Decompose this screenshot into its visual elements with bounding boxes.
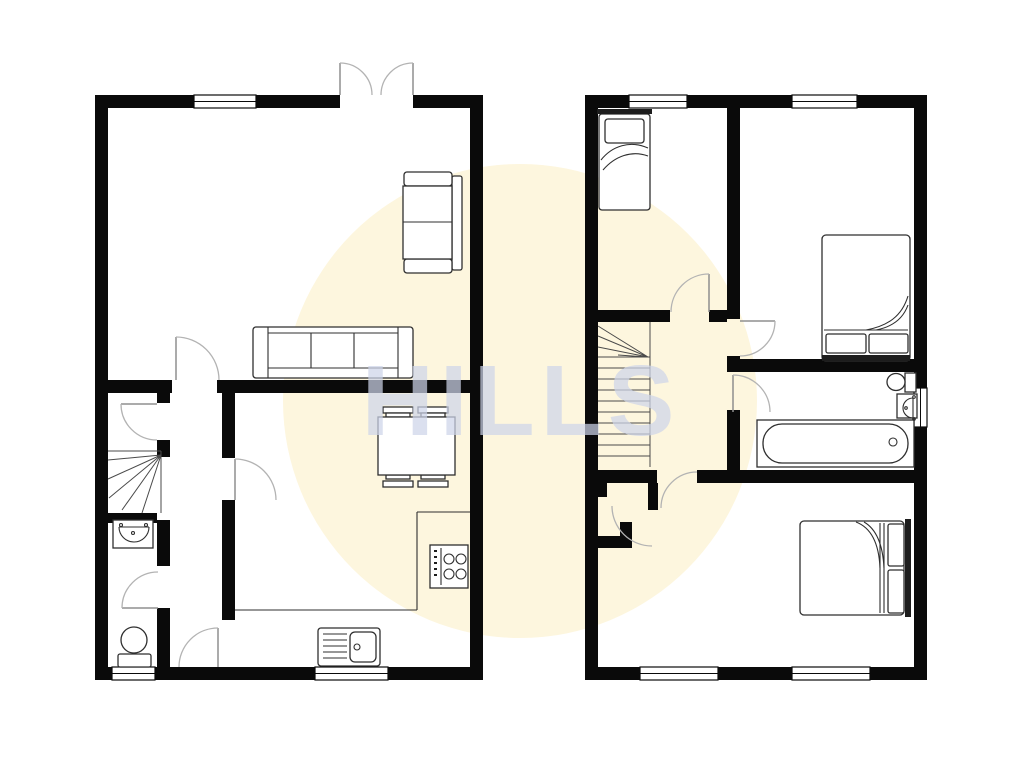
toilet-icon <box>887 373 916 392</box>
wc-window-icon <box>112 667 155 680</box>
floorplan-page: HILLS <box>0 0 1024 778</box>
bedroom2-window-icon <box>629 95 687 108</box>
bedroom3-window-right-icon <box>792 667 870 680</box>
kitchen-door-icon <box>235 459 276 500</box>
hob-icon <box>430 545 468 588</box>
lounge-door-icon <box>176 337 219 380</box>
floorplan-image: HILLS <box>0 0 1024 778</box>
wc-door-icon <box>122 572 158 608</box>
wash-basin-icon <box>897 394 917 420</box>
bath-icon <box>757 420 914 467</box>
double-bed-icon <box>800 519 911 617</box>
bedroom1-window-icon <box>792 95 857 108</box>
single-bed-icon <box>597 109 652 210</box>
kitchen-sink-icon <box>318 628 380 666</box>
two-seat-sofa-icon <box>403 172 462 273</box>
staircase-icon <box>108 451 161 513</box>
kitchen-hall-door-icon <box>179 628 218 667</box>
kitchen-window-icon <box>315 667 388 680</box>
toilet-icon <box>118 627 151 667</box>
watermark-text: HILLS <box>362 345 681 457</box>
french-doors-icon <box>340 63 413 95</box>
bedroom3-window-left-icon <box>640 667 718 680</box>
double-bed-icon <box>822 235 910 361</box>
wash-basin-icon <box>113 520 153 548</box>
hall-door-icon <box>121 404 157 440</box>
lounge-window-icon <box>194 95 256 108</box>
